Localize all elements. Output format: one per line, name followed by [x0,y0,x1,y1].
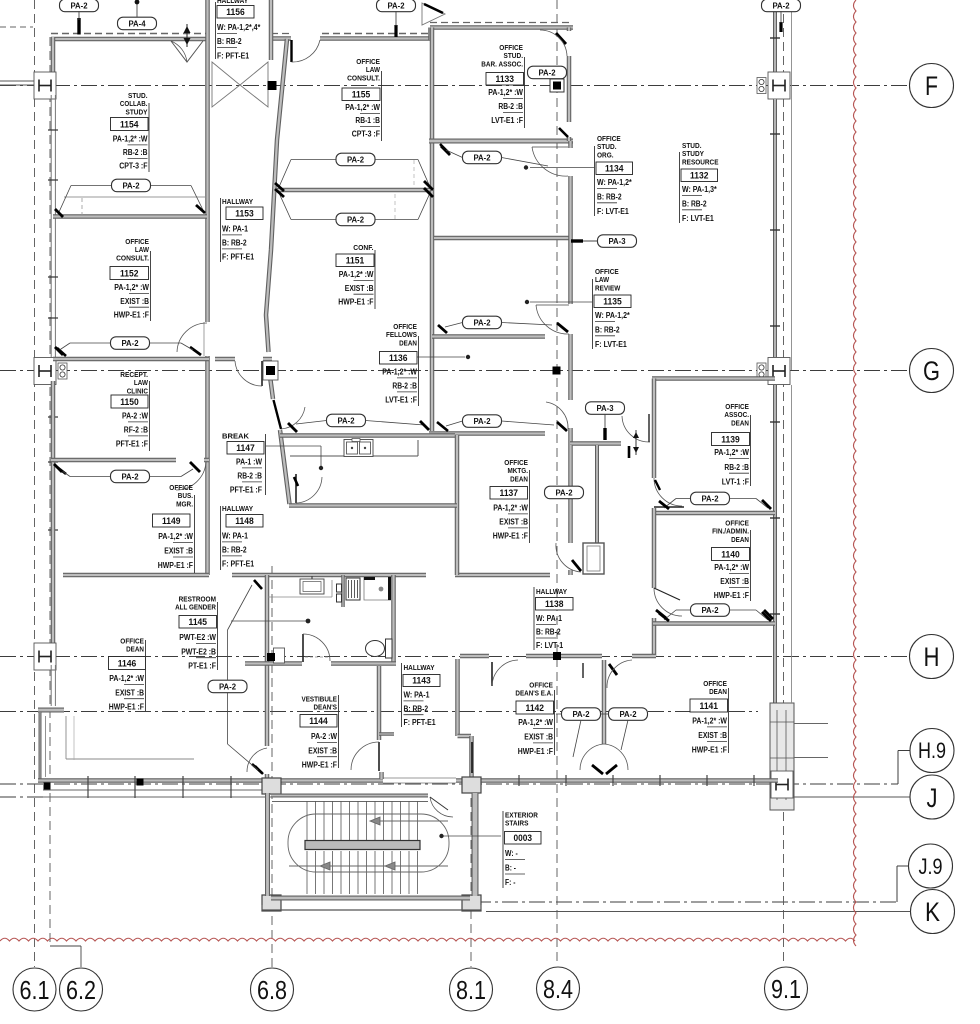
svg-text:PA-2: PA-2 [555,488,572,498]
svg-text:EXIST :B: EXIST :B [308,746,337,755]
svg-text:PA-2 :W: PA-2 :W [122,412,148,421]
svg-text:B: -: B: - [505,864,516,873]
svg-text:1149: 1149 [162,516,181,526]
svg-text:EXIST :B: EXIST :B [720,577,749,586]
svg-text:W: -: W: - [505,849,518,858]
svg-text:PA-1,2* :W: PA-1,2* :W [382,368,417,377]
svg-text:HWP-E1 :F: HWP-E1 :F [714,591,749,600]
svg-text:6.1: 6.1 [20,975,50,1005]
svg-text:PA-2: PA-2 [121,472,138,482]
svg-text:G: G [923,356,940,386]
svg-text:F: F [925,71,938,101]
svg-text:PA-2: PA-2 [122,181,139,191]
svg-text:HWP-E1 :F: HWP-E1 :F [114,311,149,320]
svg-text:1133: 1133 [496,74,515,84]
svg-text:F: LVT-E1: F: LVT-E1 [597,207,629,216]
svg-text:8.1: 8.1 [456,975,486,1005]
svg-text:1146: 1146 [118,659,137,669]
svg-text:PA-2: PA-2 [701,605,718,615]
svg-text:1147: 1147 [236,443,255,453]
svg-text:F: PFT-E1: F: PFT-E1 [222,253,255,262]
svg-text:HALLWAY: HALLWAY [536,587,567,596]
svg-text:1154: 1154 [120,120,139,130]
svg-text:1151: 1151 [346,256,365,266]
svg-text:CONSULT.: CONSULT. [116,253,149,262]
svg-text:LVT-E1 :F: LVT-E1 :F [385,396,417,405]
svg-text:8.4: 8.4 [543,974,573,1004]
svg-text:PA-2: PA-2 [387,1,404,11]
svg-text:HWP-E1 :F: HWP-E1 :F [158,561,193,570]
svg-text:EXIST :B: EXIST :B [499,518,528,527]
svg-text:6.2: 6.2 [66,975,96,1005]
svg-text:RB-2 :B: RB-2 :B [498,102,523,111]
svg-text:DEAN'S E.A.: DEAN'S E.A. [515,689,553,698]
svg-text:PA-1,2* :W: PA-1,2* :W [345,103,380,112]
svg-text:PA-1 :W: PA-1 :W [236,458,262,467]
svg-text:PA-2: PA-2 [473,318,490,328]
svg-text:PA-2: PA-2 [538,68,555,78]
svg-text:6.8: 6.8 [257,975,287,1005]
svg-text:ORG.: ORG. [597,150,614,159]
svg-text:PA-2: PA-2 [70,1,87,11]
svg-text:1141: 1141 [700,701,719,711]
svg-text:PA-3: PA-3 [596,403,613,413]
svg-text:PFT-E1 :F: PFT-E1 :F [116,440,148,449]
svg-text:PA-1,2* :W: PA-1,2* :W [158,532,193,541]
svg-text:HALLWAY: HALLWAY [404,663,435,672]
svg-text:B: RB-2: B: RB-2 [682,199,707,208]
svg-text:J: J [927,783,938,813]
svg-text:DEAN: DEAN [510,474,528,483]
svg-text:W: PA-1: W: PA-1 [222,532,248,541]
svg-text:PA-2 :W: PA-2 :W [311,732,337,741]
svg-text:1135: 1135 [603,297,622,307]
svg-text:1142: 1142 [526,703,545,713]
svg-text:F: LVT-1: F: LVT-1 [536,641,564,650]
svg-text:K: K [925,897,940,927]
svg-text:DEAN: DEAN [731,418,749,427]
svg-text:LVT-E1 :F: LVT-E1 :F [491,116,523,125]
svg-text:PA-2: PA-2 [347,215,364,225]
svg-text:PA-1,2* :W: PA-1,2* :W [493,504,528,513]
svg-text:F: PFT-E1: F: PFT-E1 [217,51,250,60]
svg-text:HALLWAY: HALLWAY [222,197,253,206]
svg-text:EXIST :B: EXIST :B [120,297,149,306]
svg-text:RB-2 :B: RB-2 :B [392,382,417,391]
svg-text:1156: 1156 [226,7,245,17]
svg-text:BAR. ASSOC.: BAR. ASSOC. [481,59,523,68]
svg-text:B: RB-2: B: RB-2 [404,704,429,713]
svg-text:F: PFT-E1: F: PFT-E1 [404,718,437,727]
svg-text:B: RB-2: B: RB-2 [595,325,620,334]
svg-text:1140: 1140 [721,550,740,560]
svg-text:F: PFT-E1: F: PFT-E1 [222,560,255,569]
svg-text:EXIST :B: EXIST :B [345,284,374,293]
svg-text:PA-2: PA-2 [572,709,589,719]
svg-text:PA-1,2* :W: PA-1,2* :W [518,718,553,727]
svg-text:PWT-E2 :B: PWT-E2 :B [181,647,216,656]
svg-text:1137: 1137 [500,488,519,498]
svg-text:PA-2: PA-2 [219,682,236,692]
svg-text:PA-2: PA-2 [473,416,490,426]
svg-text:HWP-E1 :F: HWP-E1 :F [302,761,337,770]
svg-text:EXIST :B: EXIST :B [698,731,727,740]
svg-text:B: RB-2: B: RB-2 [217,37,242,46]
svg-text:1143: 1143 [412,676,431,686]
svg-text:HWP-E1 :F: HWP-E1 :F [338,298,373,307]
svg-text:W: PA-1,2*: W: PA-1,2* [595,311,630,320]
svg-text:HWP-E1 :F: HWP-E1 :F [518,747,553,756]
svg-text:1145: 1145 [189,617,208,627]
svg-text:F: -: F: - [505,878,516,887]
svg-text:PA-1,2* :W: PA-1,2* :W [114,283,149,292]
svg-text:HALLWAY: HALLWAY [217,0,248,5]
svg-text:1152: 1152 [120,269,139,279]
svg-text:PA-2: PA-2 [121,338,138,348]
svg-text:1150: 1150 [120,397,139,407]
svg-text:PA-4: PA-4 [128,19,145,29]
svg-text:DEAN: DEAN [731,535,749,544]
svg-text:DEAN: DEAN [126,645,144,654]
svg-text:STUDY: STUDY [126,107,148,116]
svg-text:1136: 1136 [389,353,408,363]
svg-text:DEAN'S: DEAN'S [314,703,338,712]
svg-text:PA-1,2* :W: PA-1,2* :W [488,88,523,97]
svg-text:RF-2 :B: RF-2 :B [124,426,148,435]
svg-text:PA-2: PA-2 [619,709,636,719]
svg-text:B: RB-2: B: RB-2 [222,546,247,555]
svg-text:W: PA-1: W: PA-1 [222,225,248,234]
svg-text:9.1: 9.1 [771,974,801,1004]
svg-text:F: LVT-E1: F: LVT-E1 [595,340,627,349]
svg-text:RB-2 :B: RB-2 :B [724,463,749,472]
svg-text:HWP-E1 :F: HWP-E1 :F [692,746,727,755]
svg-text:PWT-E2 :W: PWT-E2 :W [179,633,216,642]
svg-text:1134: 1134 [605,164,624,174]
svg-text:W: PA-1: W: PA-1 [536,614,562,623]
svg-text:1138: 1138 [545,599,564,609]
svg-text:REVIEW: REVIEW [595,283,621,292]
svg-text:PA-1,2* :W: PA-1,2* :W [113,135,148,144]
svg-text:W: PA-1,3*: W: PA-1,3* [682,185,717,194]
svg-text:PA-2: PA-2 [347,155,364,165]
svg-text:1139: 1139 [721,435,740,445]
svg-text:1148: 1148 [235,516,254,526]
svg-text:PFT-E1 :F: PFT-E1 :F [230,486,262,495]
svg-text:PA-1,2* :W: PA-1,2* :W [692,717,727,726]
svg-text:PT-E1 :F: PT-E1 :F [188,662,216,671]
svg-text:RB-1 :B: RB-1 :B [355,116,380,125]
svg-text:B: RB-2: B: RB-2 [222,239,247,248]
svg-text:DEAN: DEAN [709,687,727,696]
svg-text:PA-1,2* :W: PA-1,2* :W [339,270,374,279]
svg-text:1155: 1155 [352,90,371,100]
svg-text:RESOURCE: RESOURCE [682,157,719,166]
svg-text:BREAK: BREAK [222,432,250,441]
svg-text:CLINIC: CLINIC [127,386,149,395]
svg-text:J.9: J.9 [919,854,943,879]
svg-text:F: LVT-E1: F: LVT-E1 [682,214,714,223]
svg-text:1132: 1132 [690,171,709,181]
svg-text:PA-3: PA-3 [608,236,625,246]
svg-text:PA-2: PA-2 [701,494,718,504]
svg-text:DEAN: DEAN [399,338,417,347]
svg-text:CONF.: CONF. [353,243,373,252]
svg-text:CPT-3 :F: CPT-3 :F [119,162,147,171]
svg-text:LVT-1 :F: LVT-1 :F [722,478,749,487]
svg-text:W: PA-1,2*,4*: W: PA-1,2*,4* [217,23,261,32]
svg-text:1144: 1144 [309,716,328,726]
svg-text:RB-2 :B: RB-2 :B [123,148,148,157]
svg-text:B: RB-2: B: RB-2 [597,192,622,201]
svg-text:CONSULT.: CONSULT. [347,73,380,82]
svg-text:W: PA-1: W: PA-1 [404,691,430,700]
svg-text:PA-1,2* :W: PA-1,2* :W [109,674,144,683]
svg-text:1153: 1153 [235,209,254,219]
svg-text:PA-2: PA-2 [772,1,789,11]
svg-text:RB-2 :B: RB-2 :B [237,472,262,481]
svg-text:PA-1,2* :W: PA-1,2* :W [714,563,749,572]
svg-text:0003: 0003 [514,833,533,843]
svg-text:PA-2: PA-2 [337,416,354,426]
svg-text:W: PA-1,2*: W: PA-1,2* [597,178,632,187]
svg-text:PA-1,2* :W: PA-1,2* :W [714,448,749,457]
svg-text:HALLWAY: HALLWAY [222,504,253,513]
svg-text:H: H [924,642,940,672]
svg-text:H.9: H.9 [918,738,946,763]
svg-text:B: RB-2: B: RB-2 [536,628,561,637]
svg-text:HWP-E1 :F: HWP-E1 :F [493,532,528,541]
svg-text:MGR.: MGR. [176,499,193,508]
svg-text:EXIST :B: EXIST :B [524,733,553,742]
svg-text:ALL GENDER: ALL GENDER [175,603,216,612]
svg-text:CPT-3 :F: CPT-3 :F [352,129,380,138]
svg-text:EXIST :B: EXIST :B [164,547,193,556]
svg-text:EXIST :B: EXIST :B [115,688,144,697]
svg-text:HWP-E1 :F: HWP-E1 :F [109,703,144,712]
svg-text:STAIRS: STAIRS [505,819,529,828]
svg-text:PA-2: PA-2 [473,153,490,163]
